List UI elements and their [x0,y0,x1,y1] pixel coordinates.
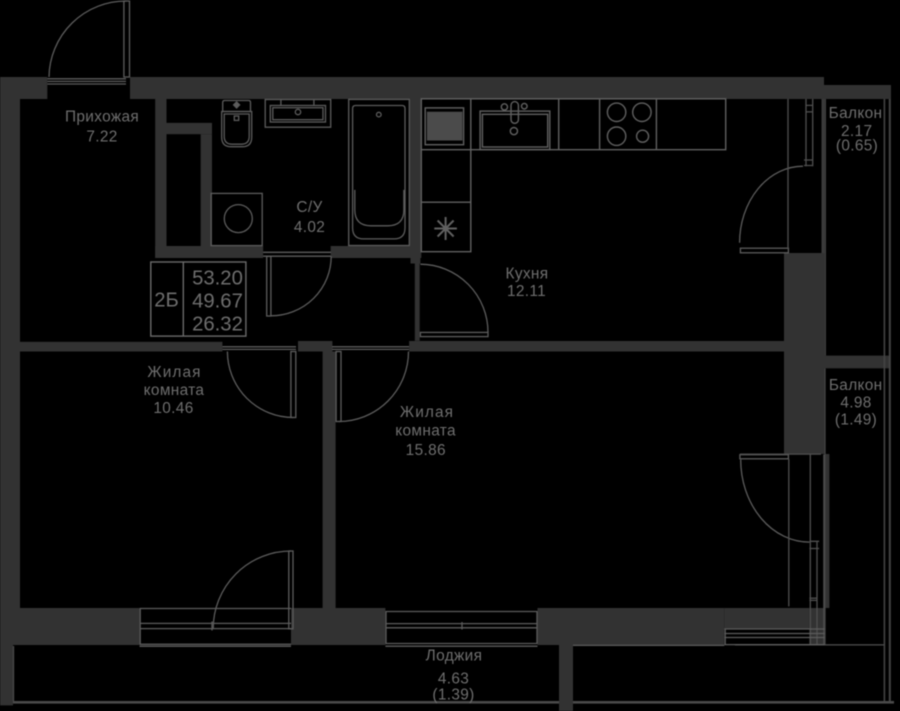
svg-text:12.11: 12.11 [507,283,546,300]
svg-text:15.86: 15.86 [406,442,446,459]
svg-text:комната: комната [144,382,205,399]
svg-text:Жилая: Жилая [400,404,454,421]
svg-text:2Б: 2Б [154,290,179,312]
svg-text:комната: комната [395,423,456,440]
svg-text:10.46: 10.46 [153,400,193,417]
svg-text:49.67: 49.67 [192,291,243,313]
svg-text:Балкон: Балкон [829,105,883,122]
svg-text:26.32: 26.32 [192,314,243,336]
svg-text:4.63: 4.63 [438,671,469,688]
svg-text:Прихожая: Прихожая [65,109,139,126]
svg-text:Жилая: Жилая [147,364,201,381]
svg-text:7.22: 7.22 [86,128,117,145]
svg-text:(1.49): (1.49) [835,412,877,429]
svg-text:(0.65): (0.65) [836,138,878,155]
svg-text:4.02: 4.02 [294,219,325,236]
svg-text:Кухня: Кухня [506,266,549,283]
svg-text:С/У: С/У [296,199,322,216]
svg-text:4.98: 4.98 [840,395,871,412]
svg-text:53.20: 53.20 [192,268,243,290]
svg-text:(1.39): (1.39) [432,687,474,704]
svg-text:Лоджия: Лоджия [426,648,483,665]
svg-text:Балкон: Балкон [829,377,883,394]
